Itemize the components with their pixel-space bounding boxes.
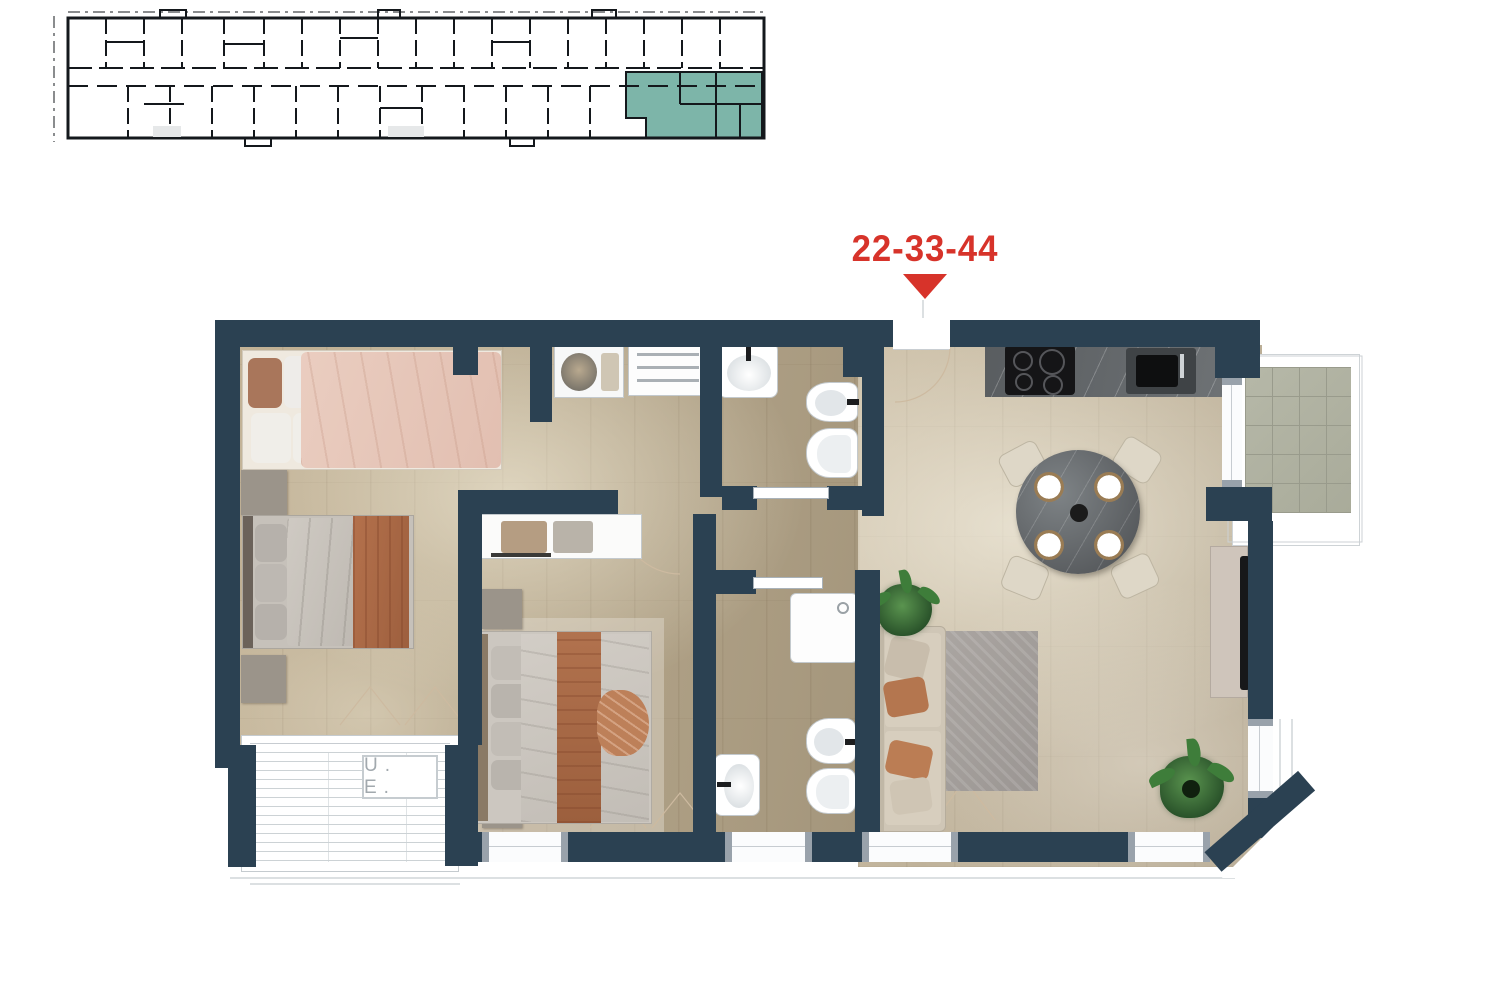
toilet xyxy=(806,428,858,478)
place-setting xyxy=(1094,472,1124,502)
wall-bottom xyxy=(958,832,1128,862)
blanket-fold xyxy=(597,690,649,756)
toilet xyxy=(806,768,856,814)
wall-bedroom1-study xyxy=(530,347,552,422)
wall-bottom xyxy=(450,832,482,862)
office-chair xyxy=(561,353,597,391)
desk xyxy=(554,344,624,398)
pillow xyxy=(255,604,287,640)
balcony-door xyxy=(1222,378,1242,487)
bathroom1-door xyxy=(753,487,829,499)
pillow xyxy=(251,413,291,463)
wall-bottom xyxy=(568,832,725,862)
faucet xyxy=(717,782,731,787)
folded-clothes xyxy=(553,521,593,553)
pillow xyxy=(255,524,287,562)
hanging-rail xyxy=(491,553,551,557)
place-setting xyxy=(1094,530,1124,560)
bidet xyxy=(806,718,856,764)
sink-bowl xyxy=(1136,355,1178,387)
burner xyxy=(1013,351,1033,371)
toilet-lid-line xyxy=(817,435,851,473)
headboard xyxy=(243,516,253,648)
nightstand xyxy=(241,655,286,703)
bidet-bowl xyxy=(815,390,847,416)
key-plan-courtyard xyxy=(388,126,424,137)
plant-pot xyxy=(1182,780,1200,798)
wall-top-right xyxy=(950,320,1260,347)
faucet xyxy=(746,345,751,361)
toilet-lid-line xyxy=(816,775,849,809)
entrance-door-swing xyxy=(895,347,950,402)
throw-terracotta xyxy=(353,516,409,648)
burner xyxy=(1039,349,1065,375)
washbasin xyxy=(718,342,778,398)
nightstand xyxy=(241,470,287,515)
shower-drain xyxy=(837,602,849,614)
unit-number-label: 22-33-44 xyxy=(826,228,1023,270)
window-right xyxy=(1248,719,1273,798)
bed-double-terracotta xyxy=(476,631,652,824)
sofa-pillow-terracotta xyxy=(882,676,930,719)
wall-balcony-step xyxy=(1206,487,1272,521)
shower-tray xyxy=(790,593,858,663)
burner xyxy=(1043,375,1063,395)
kitchen-sink xyxy=(1126,348,1196,394)
washbasin xyxy=(714,754,760,816)
window xyxy=(1128,832,1210,862)
wall-left xyxy=(215,320,240,768)
floor-plan-page: 22-33-44 U. E. xyxy=(0,0,1500,994)
bathroom2-door xyxy=(753,577,823,589)
wall-bedroom3-top xyxy=(458,490,618,514)
wall-entry-pillar xyxy=(843,347,884,377)
entrance-opening xyxy=(893,318,950,349)
duvet-grey xyxy=(287,518,357,646)
pillow xyxy=(255,564,287,602)
shelf-unit xyxy=(628,341,708,396)
wall-right xyxy=(1248,521,1273,719)
wall-bath1-bottom xyxy=(827,486,884,510)
blanket-terracotta xyxy=(557,632,601,823)
wall-hall-bath1 xyxy=(700,347,722,497)
place-setting xyxy=(1034,472,1064,502)
rug xyxy=(944,631,1038,791)
sofa-pillow xyxy=(889,776,933,815)
wall-bedroom2-3 xyxy=(458,503,482,745)
wall-bath2-living xyxy=(855,570,880,843)
wardrobe xyxy=(466,514,642,559)
shelf-slat xyxy=(637,379,699,382)
window xyxy=(482,832,568,862)
shelf-slat xyxy=(637,353,699,356)
wall-bath2-top xyxy=(716,570,756,594)
unit-location-marker xyxy=(903,274,947,299)
key-plan-courtyard xyxy=(153,126,181,137)
bed-double-grey xyxy=(242,515,414,649)
window xyxy=(862,832,958,862)
wall-balcony-pillar xyxy=(1215,320,1260,378)
wall-bedroom3-bath2 xyxy=(693,514,716,832)
wall-bath1-bottom xyxy=(722,486,757,510)
place-setting xyxy=(1034,530,1064,560)
cooktop xyxy=(1005,345,1075,395)
wall-terrace-left xyxy=(228,745,256,867)
desk-items xyxy=(601,353,619,391)
bidet-bowl xyxy=(814,728,844,756)
pillow xyxy=(248,358,282,408)
sink-faucet xyxy=(1180,354,1184,378)
tap xyxy=(847,399,859,405)
wall-top-left xyxy=(215,320,893,347)
wall-pillar xyxy=(453,347,478,375)
nightstand xyxy=(482,589,522,629)
bidet xyxy=(806,382,858,422)
table-centerpiece xyxy=(1070,504,1088,522)
window xyxy=(725,832,812,862)
folded-clothes xyxy=(501,521,547,553)
shelf-slat xyxy=(637,366,699,369)
building-key-plan xyxy=(40,8,770,148)
burner xyxy=(1015,373,1033,391)
